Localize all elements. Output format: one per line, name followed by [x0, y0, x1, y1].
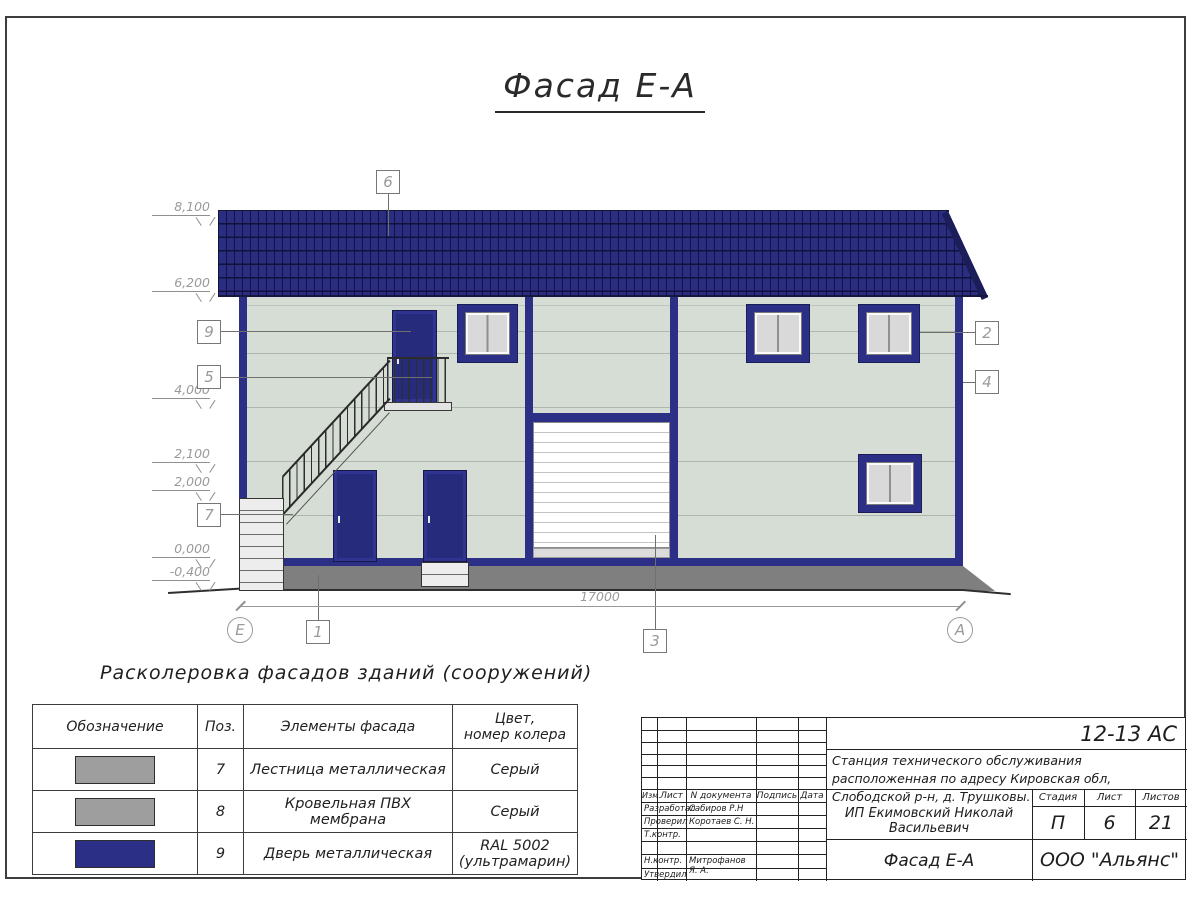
level-value: 8,100 [174, 199, 210, 214]
roof [218, 211, 988, 297]
window-frame [866, 462, 914, 505]
window-glass [468, 315, 507, 352]
dimension-line [240, 606, 960, 607]
window-upper-right [858, 304, 920, 363]
role-name: Сабиров Р.Н [689, 804, 755, 814]
sheets-header: Листов [1135, 792, 1187, 803]
legend-header-element: Элементы фасада [244, 705, 453, 749]
legend-element: Кровельная ПВХ мембрана [244, 791, 453, 833]
door-handle [428, 516, 430, 523]
level-value: 2,000 [174, 474, 210, 489]
level-arrow-icon [200, 216, 211, 225]
leader-line [221, 377, 432, 378]
dimension-value: 17000 [560, 589, 640, 604]
col-izm: Изм. [642, 791, 657, 800]
col-list: Лист [657, 791, 686, 801]
level-value: 6,200 [174, 275, 210, 290]
legend-element: Лестница металлическая [244, 749, 453, 791]
callout-6: 6 [376, 170, 400, 194]
legend-element: Дверь металлическая [244, 833, 453, 875]
level-mark: 0,000 [152, 541, 210, 558]
level-arrow-icon [200, 463, 211, 472]
door-steps [421, 562, 469, 587]
corner-trim-right [955, 296, 963, 562]
color-swatch [75, 840, 155, 868]
legend-pos: 8 [198, 791, 244, 833]
window-glass [757, 315, 799, 352]
plinth-band [283, 558, 963, 566]
legend-row: 9 Дверь металлическая RAL 5002 (ультрама… [33, 833, 578, 875]
leader-line [318, 575, 319, 620]
callout-4: 4 [975, 370, 999, 394]
facade-view: 8,100 6,200 4,000 2,100 2,000 0,000 -0,4… [0, 0, 1200, 700]
legend-title: Расколеровка фасадов зданий (сооружений) [100, 662, 592, 684]
role-label: Разработал [644, 804, 688, 814]
legend-color: Серый [453, 791, 578, 833]
sheet-header: Лист [1084, 792, 1135, 803]
wall-seam [241, 353, 961, 354]
callout-7: 7 [197, 503, 221, 527]
wall-seam [241, 305, 961, 306]
leader-line [655, 535, 656, 629]
landing-railing [387, 357, 449, 403]
garage-sill [533, 548, 670, 558]
role-label: Т.контр. [644, 830, 688, 840]
sheets-total: 21 [1135, 812, 1187, 834]
leader-line [920, 332, 975, 333]
legend-pos: 9 [198, 833, 244, 875]
axis-marker-e: Е [227, 617, 253, 643]
role-name: Митрофанов Я. А. [689, 856, 755, 876]
level-mark: 6,200 [152, 275, 210, 292]
level-mark: -0,400 [152, 564, 210, 581]
level-mark: 8,100 [152, 199, 210, 216]
callout-9: 9 [197, 320, 221, 344]
leader-line [221, 331, 411, 332]
company-name: ООО "Альянс" [1032, 849, 1187, 871]
client-name: ИП Екимовский Николай Васильевич [828, 806, 1030, 836]
stoop-steps [239, 498, 284, 591]
entry-door-2 [423, 470, 467, 562]
stage-value: П [1032, 812, 1084, 834]
legend-header-pos: Поз. [198, 705, 244, 749]
legend-color: RAL 5002 (ультрамарин) [453, 833, 578, 875]
window-frame [465, 312, 510, 355]
legend-row: 7 Лестница металлическая Серый [33, 749, 578, 791]
leader-line [963, 382, 975, 383]
color-swatch [75, 798, 155, 826]
pilaster-right [670, 296, 678, 565]
roof-eave-line [218, 295, 988, 297]
col-date: Дата [798, 791, 826, 801]
level-value: -0,400 [170, 564, 210, 579]
level-value: 0,000 [174, 541, 210, 556]
callout-1: 1 [306, 620, 330, 644]
window-frame [754, 312, 802, 355]
callout-3: 3 [643, 629, 667, 653]
color-swatch [75, 756, 155, 784]
window-frame [866, 312, 912, 355]
plinth [283, 566, 963, 591]
plinth-slope-right [963, 566, 995, 591]
pilaster-left [525, 296, 533, 565]
sheet-number: 6 [1084, 812, 1135, 834]
legend-row: 8 Кровельная ПВХ мембрана Серый [33, 791, 578, 833]
legend-table: Обозначение Поз. Элементы фасада Цвет, н… [32, 704, 578, 875]
level-arrow-icon [200, 491, 211, 500]
role-label: Проверил [644, 817, 688, 827]
level-arrow-icon [200, 581, 211, 590]
title-block: Изм. Лист N документа Подпись Дата Разра… [641, 717, 1186, 880]
window-upper-mid [746, 304, 810, 363]
level-mark: 2,100 [152, 446, 210, 463]
drawing-sheet: Фасад Е-А [0, 0, 1200, 900]
entry-door-1 [333, 470, 377, 562]
corner-trim-left [239, 296, 247, 498]
legend-header-color: Цвет, номер колера [453, 705, 578, 749]
window-glass [869, 465, 911, 502]
stage-header: Стадия [1032, 792, 1084, 803]
legend-header-row: Обозначение Поз. Элементы фасада Цвет, н… [33, 705, 578, 749]
level-value: 2,100 [174, 446, 210, 461]
role-label: Н.контр. [644, 856, 688, 866]
level-arrow-icon [200, 292, 211, 301]
leader-line [388, 194, 389, 236]
col-doc: N документа [686, 791, 756, 801]
window-glass [869, 315, 909, 352]
level-arrow-icon [200, 399, 211, 408]
doc-code: 12-13 АС [832, 722, 1177, 746]
legend-color: Серый [453, 749, 578, 791]
window-upper-left [457, 304, 518, 363]
garage-door [533, 422, 670, 548]
callout-2: 2 [975, 321, 999, 345]
garage-header-band [525, 413, 678, 422]
leader-line [221, 514, 293, 515]
axis-marker-a: А [947, 617, 973, 643]
landing-slab [384, 402, 452, 411]
level-mark: 2,000 [152, 474, 210, 491]
role-name: Коротаев С. Н. [689, 817, 755, 827]
legend-pos: 7 [198, 749, 244, 791]
sheet-title: Фасад Е-А [828, 851, 1030, 871]
door-handle [338, 516, 340, 523]
col-sign: Подпись [756, 791, 798, 801]
window-lower-right [858, 454, 922, 513]
legend-header-designation: Обозначение [33, 705, 198, 749]
callout-5: 5 [197, 365, 221, 389]
role-label: Утвердил [644, 870, 688, 880]
